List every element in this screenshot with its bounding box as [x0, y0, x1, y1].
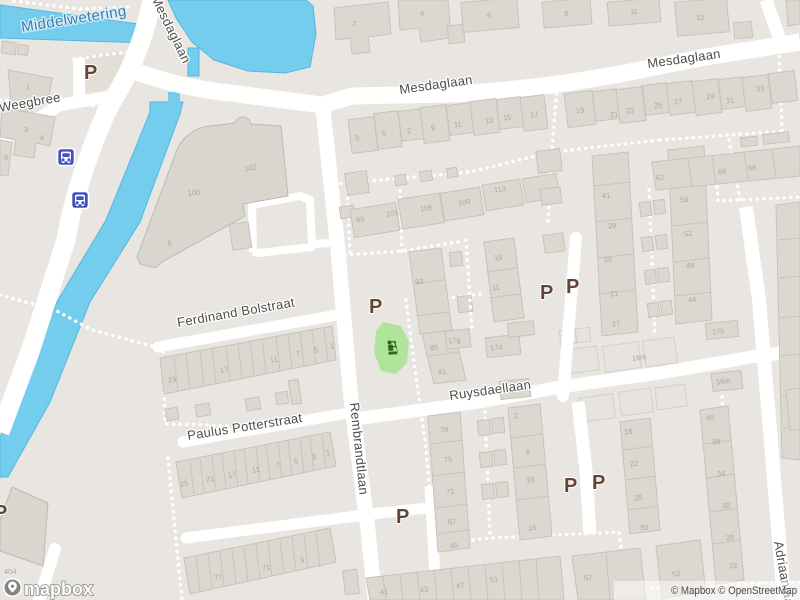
svg-text:38: 38 [712, 437, 721, 447]
svg-text:6: 6 [487, 11, 491, 20]
svg-text:41: 41 [379, 587, 388, 597]
svg-text:17b: 17b [712, 326, 725, 336]
svg-text:1: 1 [26, 83, 30, 92]
svg-text:23: 23 [625, 106, 634, 116]
svg-text:51: 51 [489, 575, 498, 585]
svg-text:6: 6 [4, 153, 8, 162]
svg-text:17g: 17g [448, 335, 461, 345]
svg-text:18: 18 [624, 427, 633, 437]
svg-text:66: 66 [718, 167, 727, 177]
svg-text:29: 29 [608, 221, 617, 231]
svg-text:17: 17 [227, 469, 237, 479]
svg-text:102: 102 [244, 162, 258, 173]
svg-text:404: 404 [4, 567, 17, 576]
svg-text:34: 34 [717, 469, 726, 479]
svg-text:21: 21 [205, 473, 215, 483]
svg-text:71: 71 [261, 562, 271, 572]
svg-text:41: 41 [602, 191, 611, 201]
svg-text:52: 52 [684, 229, 693, 239]
svg-text:P: P [564, 475, 577, 497]
svg-text:3: 3 [24, 125, 28, 134]
svg-text:25: 25 [179, 478, 189, 488]
svg-text:29: 29 [705, 92, 714, 102]
svg-text:30: 30 [722, 501, 731, 511]
svg-text:40: 40 [706, 413, 715, 423]
svg-text:81: 81 [438, 367, 447, 377]
svg-text:P: P [369, 296, 382, 318]
svg-text:71: 71 [446, 487, 455, 497]
svg-text:11: 11 [492, 283, 501, 293]
svg-text:22: 22 [729, 561, 738, 571]
svg-text:10: 10 [526, 475, 535, 485]
svg-text:12: 12 [696, 13, 704, 22]
svg-text:17d: 17d [490, 342, 503, 352]
svg-text:85: 85 [430, 343, 439, 353]
svg-text:17: 17 [219, 364, 229, 374]
svg-text:99: 99 [355, 215, 365, 225]
svg-text:53: 53 [671, 569, 680, 579]
svg-text:mapbox: mapbox [24, 579, 93, 599]
svg-text:17: 17 [612, 319, 621, 329]
svg-text:15: 15 [494, 253, 503, 263]
svg-text:45: 45 [450, 541, 459, 551]
svg-text:26: 26 [634, 493, 643, 503]
svg-text:113: 113 [493, 184, 506, 195]
svg-text:2: 2 [352, 19, 356, 28]
svg-text:30: 30 [640, 523, 649, 533]
svg-text:58: 58 [680, 195, 689, 205]
svg-text:48: 48 [686, 261, 695, 271]
svg-text:77: 77 [213, 572, 223, 582]
svg-text:62: 62 [656, 173, 665, 183]
svg-text:13: 13 [484, 116, 493, 126]
svg-text:17: 17 [529, 110, 538, 120]
svg-text:33: 33 [755, 84, 764, 94]
svg-text:11: 11 [630, 7, 638, 16]
svg-text:P: P [540, 282, 553, 304]
svg-text:43: 43 [419, 585, 428, 595]
svg-text:100: 100 [187, 187, 201, 198]
svg-text:27: 27 [673, 97, 682, 107]
svg-text:23: 23 [167, 374, 177, 384]
svg-text:25: 25 [604, 255, 613, 265]
svg-text:21: 21 [609, 110, 618, 120]
svg-text:67: 67 [448, 517, 457, 527]
svg-text:9: 9 [564, 9, 568, 18]
svg-text:25: 25 [653, 101, 662, 111]
svg-text:79: 79 [440, 425, 449, 435]
svg-text:19: 19 [575, 106, 584, 116]
svg-text:P: P [84, 62, 97, 84]
svg-text:© Mapbox © OpenStreetMap: © Mapbox © OpenStreetMap [671, 585, 797, 597]
svg-text:68: 68 [748, 163, 757, 173]
svg-text:21: 21 [610, 289, 619, 299]
svg-text:26: 26 [726, 533, 735, 543]
svg-text:15: 15 [502, 113, 511, 123]
svg-text:4: 4 [420, 9, 424, 18]
svg-text:11: 11 [269, 355, 278, 365]
svg-text:11: 11 [453, 120, 462, 130]
svg-text:16: 16 [528, 523, 537, 533]
svg-text:P: P [592, 472, 605, 494]
svg-text:22: 22 [630, 459, 639, 469]
svg-text:11: 11 [251, 465, 260, 475]
svg-text:P: P [396, 506, 409, 528]
svg-text:31: 31 [725, 96, 734, 106]
svg-text:4: 4 [40, 133, 44, 142]
svg-text:16m: 16m [716, 376, 731, 386]
svg-text:47: 47 [455, 581, 464, 591]
svg-text:57: 57 [583, 573, 592, 583]
svg-text:75: 75 [444, 455, 453, 465]
svg-text:44: 44 [688, 295, 697, 305]
svg-text:P: P [566, 276, 579, 298]
svg-text:93: 93 [415, 277, 424, 287]
svg-text:P: P [0, 502, 7, 524]
